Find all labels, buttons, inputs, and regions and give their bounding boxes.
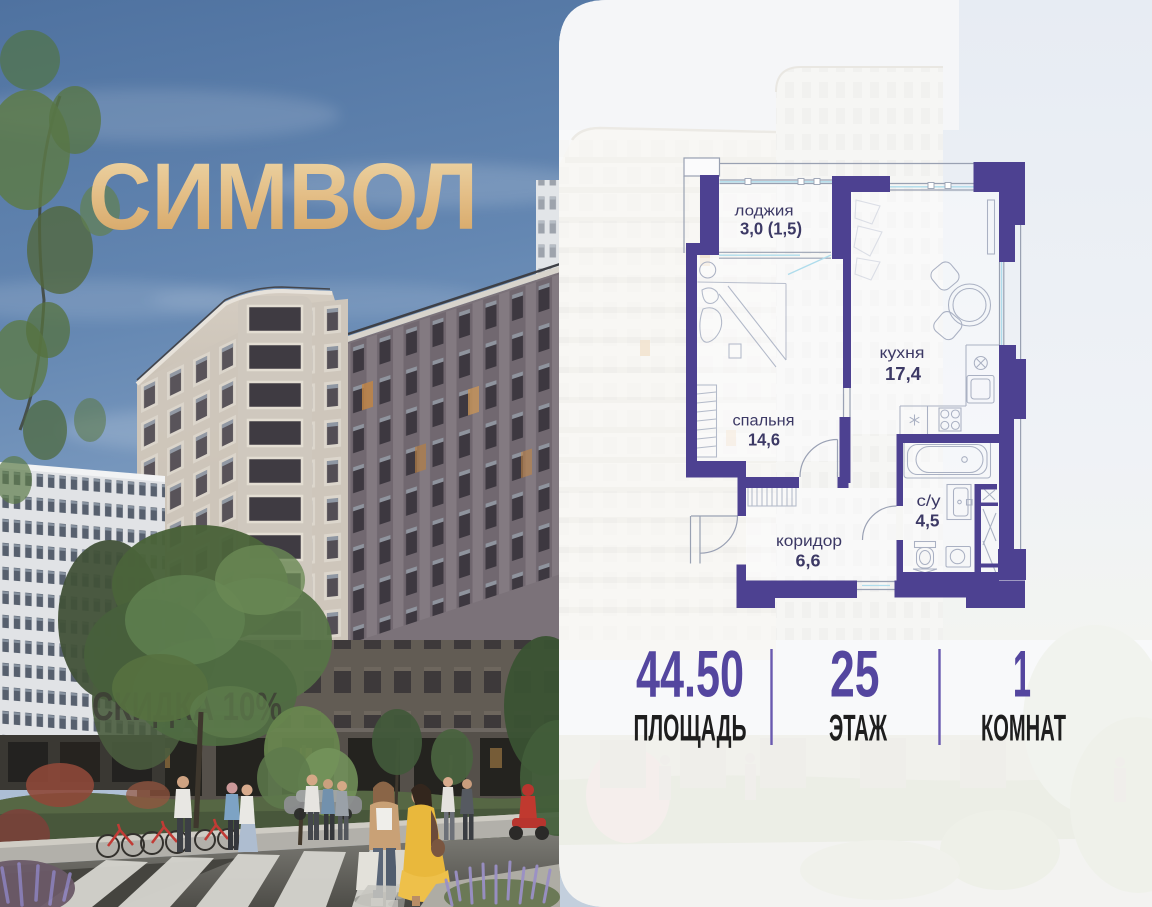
- svg-text:спальня: спальня: [733, 413, 795, 430]
- svg-text:СИМВОЛ: СИМВОЛ: [88, 144, 478, 250]
- svg-text:44.50: 44.50: [636, 637, 744, 711]
- svg-text:4,5: 4,5: [916, 511, 940, 531]
- svg-text:с/у: с/у: [917, 493, 941, 510]
- svg-text:6,6: 6,6: [796, 551, 821, 571]
- svg-text:коридор: коридор: [776, 533, 842, 550]
- svg-text:3,0 (1,5): 3,0 (1,5): [740, 219, 802, 239]
- svg-text:лоджия: лоджия: [735, 204, 794, 220]
- svg-text:КОМНАТ: КОМНАТ: [981, 708, 1066, 749]
- svg-text:25: 25: [830, 637, 880, 711]
- svg-text:кухня: кухня: [880, 345, 925, 362]
- svg-text:1: 1: [1013, 637, 1031, 711]
- svg-text:17,4: 17,4: [885, 364, 921, 384]
- svg-text:ПЛОЩАДЬ: ПЛОЩАДЬ: [634, 708, 747, 749]
- svg-text:ЭТАЖ: ЭТАЖ: [829, 708, 887, 749]
- svg-text:14,6: 14,6: [748, 430, 780, 450]
